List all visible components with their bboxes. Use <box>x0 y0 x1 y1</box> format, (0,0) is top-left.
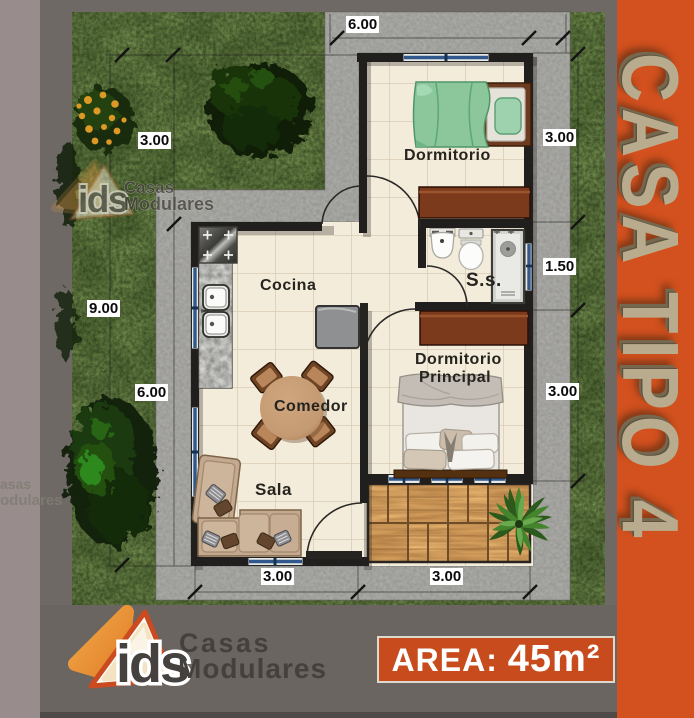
svg-text:odulares: odulares <box>0 492 63 509</box>
svg-text:ids: ids <box>78 179 128 220</box>
svg-text:Modulares: Modulares <box>124 194 214 214</box>
svg-text:Modulares: Modulares <box>178 653 327 684</box>
svg-text:asas: asas <box>0 476 31 492</box>
